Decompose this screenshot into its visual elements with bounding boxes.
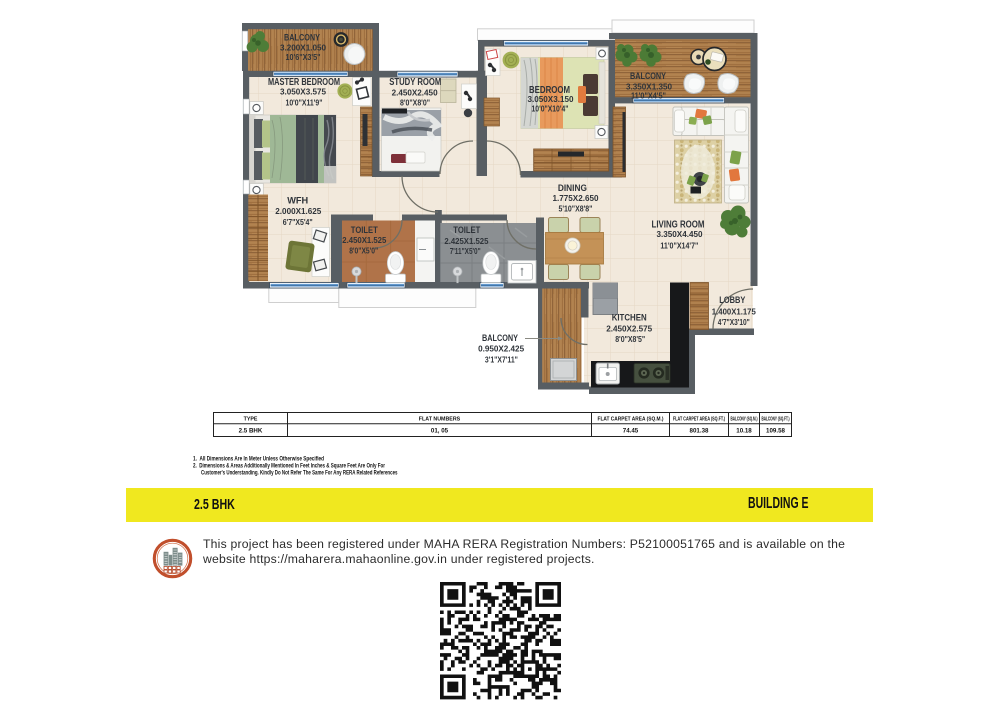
svg-text:FLAT NUMBERS: FLAT NUMBERS	[419, 416, 461, 422]
svg-text:3'1"X7'11": 3'1"X7'11"	[485, 356, 518, 365]
svg-text:7'11"X5'0": 7'11"X5'0"	[450, 247, 481, 256]
svg-text:1. All Dimensions Are In Mete: 1. All Dimensions Are In Meter Unless Ot…	[193, 455, 324, 462]
svg-text:3.350X4.450: 3.350X4.450	[657, 229, 703, 239]
svg-text:FLAT CARPET AREA (SQ.M.): FLAT CARPET AREA (SQ.M.)	[598, 416, 664, 422]
svg-text:6'7"X5'4": 6'7"X5'4"	[283, 218, 313, 227]
svg-text:10'6"X3'5": 10'6"X3'5"	[286, 53, 321, 62]
svg-text:2.000X1.625: 2.000X1.625	[275, 206, 321, 216]
svg-text:2.425X1.525: 2.425X1.525	[444, 237, 488, 246]
svg-text:2.450X2.575: 2.450X2.575	[606, 323, 652, 333]
svg-text:01, 05: 01, 05	[431, 428, 449, 435]
svg-text:3.050X3.150: 3.050X3.150	[528, 94, 574, 104]
svg-text:2. Dimensions & Areas Additio: 2. Dimensions & Areas Additionally Menti…	[193, 462, 385, 469]
svg-text:TOILET: TOILET	[351, 225, 378, 236]
svg-text:10.18: 10.18	[736, 428, 752, 435]
svg-text:11'0"X4'5": 11'0"X4'5"	[631, 92, 666, 101]
svg-text:3.350X1.350: 3.350X1.350	[626, 81, 672, 91]
svg-text:TYPE: TYPE	[244, 416, 258, 422]
svg-text:BALCONY (SQ.M.): BALCONY (SQ.M.)	[731, 416, 758, 422]
svg-text:10'0"X11'9": 10'0"X11'9"	[286, 99, 323, 108]
svg-text:109.58: 109.58	[766, 428, 785, 435]
svg-text:3.050X3.575: 3.050X3.575	[280, 86, 326, 96]
svg-text:8'0"X5'0": 8'0"X5'0"	[349, 247, 378, 256]
svg-text:1.775X2.650: 1.775X2.650	[553, 193, 599, 203]
svg-text:TOILET: TOILET	[453, 225, 480, 236]
svg-text:LOBBY: LOBBY	[719, 295, 746, 306]
svg-text:10'0"X10'4": 10'0"X10'4"	[532, 105, 569, 114]
svg-text:8'0"X8'5": 8'0"X8'5"	[615, 335, 645, 344]
svg-text:KITCHEN: KITCHEN	[612, 312, 647, 323]
svg-text:4'7"X3'10": 4'7"X3'10"	[718, 318, 750, 327]
svg-text:2.450X2.450: 2.450X2.450	[392, 88, 438, 98]
svg-text:BALCONY: BALCONY	[630, 71, 666, 82]
svg-text:FLAT CARPET AREA (SQ.FT.): FLAT CARPET AREA (SQ.FT.)	[673, 416, 725, 422]
svg-text:1.400X1.175: 1.400X1.175	[712, 307, 756, 316]
svg-text:11'0"X14'7": 11'0"X14'7"	[660, 242, 698, 251]
svg-text:Customer's Understanding. Kind: Customer's Understanding. Kindly Do Not …	[201, 469, 398, 476]
svg-text:2.5 BHK: 2.5 BHK	[239, 428, 263, 435]
svg-text:5'10"X8'8": 5'10"X8'8"	[559, 205, 593, 214]
svg-text:2.450X1.525: 2.450X1.525	[342, 236, 386, 245]
svg-text:74.45: 74.45	[623, 428, 639, 435]
svg-text:0.950X2.425: 0.950X2.425	[478, 344, 524, 354]
svg-text:WFH: WFH	[287, 196, 308, 207]
svg-text:801.38: 801.38	[690, 428, 709, 435]
svg-text:8'0"X8'0": 8'0"X8'0"	[400, 99, 430, 108]
svg-text:BALCONY: BALCONY	[482, 333, 518, 344]
svg-text:3.200X1.050: 3.200X1.050	[280, 43, 326, 53]
svg-text:BALCONY (SQ.FT.): BALCONY (SQ.FT.)	[762, 416, 790, 422]
